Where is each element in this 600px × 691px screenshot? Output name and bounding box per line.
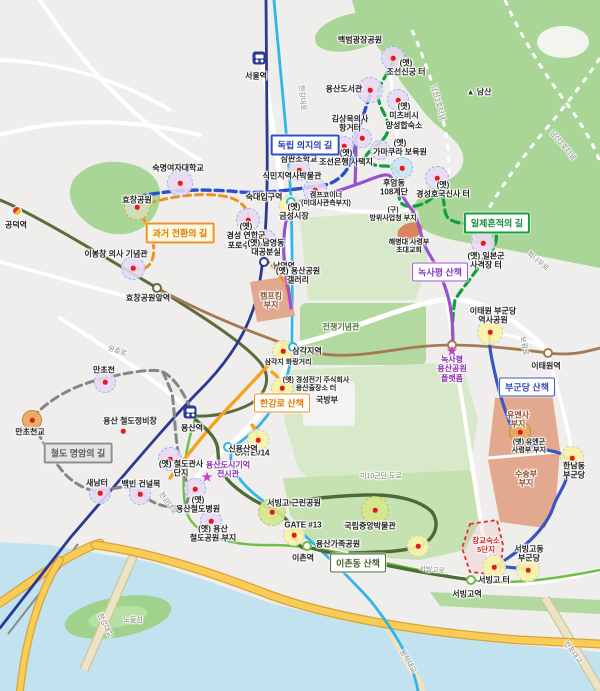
map-label: 동작대교 bbox=[397, 649, 417, 675]
poi-dot bbox=[492, 565, 497, 570]
route-railway-gray bbox=[32, 370, 190, 507]
poi-dot bbox=[178, 181, 183, 186]
station-itaewon bbox=[543, 348, 553, 358]
map-label: 한남동 부군당 bbox=[563, 462, 585, 481]
map-label: 신용산역 bbox=[228, 444, 257, 453]
map-label: (옛) 용산철도병원 bbox=[176, 496, 220, 515]
poi-circle bbox=[381, 46, 405, 70]
map-label: 공덕역 bbox=[5, 220, 27, 229]
poi-dot bbox=[360, 136, 365, 141]
expressways bbox=[0, 543, 600, 691]
map-label: (옛) 유엔군 사령부 부지 bbox=[512, 439, 546, 456]
poi-circle bbox=[119, 427, 127, 435]
map-label: 국방부 bbox=[316, 395, 338, 404]
walk-hangangro-orange bbox=[170, 350, 283, 478]
station-sinyongsan bbox=[223, 442, 233, 452]
poi-circle bbox=[200, 510, 222, 532]
poi-circle bbox=[352, 128, 372, 148]
poi-dot bbox=[30, 418, 35, 423]
map-label: (옛) 용산 철도공원 부지 bbox=[190, 525, 236, 544]
poi-circle bbox=[129, 483, 151, 505]
poi-circle bbox=[288, 159, 310, 181]
poi-circle bbox=[560, 446, 584, 470]
poi-dot bbox=[270, 510, 275, 515]
walk-ichondong-green bbox=[196, 420, 471, 580]
route-label-independence-will: 독립 의지의 길 bbox=[271, 135, 340, 156]
poi-circle bbox=[167, 170, 193, 196]
poi-dot bbox=[368, 88, 373, 93]
map-label: 유엔사 부지 bbox=[507, 411, 529, 430]
poi-dot bbox=[131, 266, 136, 271]
map-label: 장교숙소 5단지 bbox=[472, 537, 500, 555]
jungang-line bbox=[184, 416, 600, 582]
poi-dot bbox=[281, 349, 286, 354]
map-label: 한강대로 bbox=[156, 491, 178, 517]
poi-circle bbox=[121, 256, 145, 280]
map-label: 캠프킴 부지 bbox=[260, 292, 282, 311]
poi-dot bbox=[488, 330, 493, 335]
camp-kim-site bbox=[250, 276, 295, 322]
station-hyochang-park bbox=[152, 283, 162, 293]
poi-dot bbox=[292, 533, 297, 538]
map-label: (옛) 철도관사 단지 bbox=[159, 460, 203, 479]
poi-dot bbox=[391, 56, 396, 61]
rail-lines bbox=[0, 0, 600, 691]
poi-circle bbox=[22, 410, 42, 430]
map-label: 해병대 사령부 초대교회 bbox=[389, 239, 430, 256]
map-label: (옛) 금성시장 bbox=[279, 203, 308, 222]
gyeongui-line bbox=[0, 200, 267, 416]
map-label: 용산역 bbox=[181, 423, 203, 432]
station-namyeong bbox=[259, 257, 269, 267]
poi-circle bbox=[509, 421, 531, 443]
map-label: 서빙고 터 bbox=[478, 575, 510, 584]
poi-dot bbox=[570, 456, 575, 461]
subway-line4 bbox=[231, 0, 418, 691]
poi-circle bbox=[334, 136, 354, 156]
defense-ministry-block bbox=[303, 382, 355, 426]
route-independence-blue bbox=[125, 95, 370, 200]
poi-circle bbox=[158, 447, 182, 471]
route-label-past-transition: 과거 전환의 길 bbox=[146, 223, 215, 244]
banpo-bridge bbox=[545, 598, 600, 690]
poi-dot bbox=[246, 218, 251, 223]
han-river bbox=[0, 542, 600, 691]
site-areas bbox=[250, 219, 560, 575]
map-label: (옛) 경성호국신사 터 bbox=[416, 181, 470, 200]
walk-label-ichondong: 이촌동 산책 bbox=[330, 554, 386, 573]
map-label: 식민지역사박물관 bbox=[263, 171, 322, 180]
poi-circle bbox=[247, 429, 269, 451]
map-label: 만초천 bbox=[93, 365, 115, 374]
poi-dot bbox=[400, 166, 405, 171]
map-label: (옛) 경성전기 주식회사 용산출장소 터 bbox=[283, 377, 350, 394]
theme-routes bbox=[32, 60, 496, 507]
park-areas bbox=[70, 0, 600, 614]
poi-circle bbox=[482, 555, 506, 579]
poi-circle bbox=[184, 478, 206, 500]
map-label: 전쟁기념관 bbox=[323, 322, 360, 331]
poi-dot bbox=[121, 429, 126, 434]
hangang-rail-bridge bbox=[8, 544, 78, 634]
main-post-area bbox=[284, 362, 478, 520]
map-label: 회나무로 bbox=[524, 251, 549, 274]
map-label: GATE #13 bbox=[284, 520, 321, 529]
map-overlay: 서울역공덕역백범광장공원(옛) 조선신궁 터용산도서관(옛) 미츠비시 양성합숙… bbox=[0, 0, 600, 691]
poi-circle bbox=[357, 77, 383, 103]
map-label: (옛) 남영동 대공분실 bbox=[248, 239, 285, 258]
poi-circle bbox=[425, 166, 449, 190]
poi-dot bbox=[263, 238, 268, 243]
walk-routes bbox=[170, 124, 569, 580]
route-past-orange bbox=[134, 195, 289, 300]
station-sookdae-ipgu bbox=[286, 197, 296, 207]
poi-circle bbox=[254, 229, 276, 251]
poi-dot bbox=[518, 430, 523, 435]
walk-noksapyeong-purple bbox=[284, 124, 453, 348]
map-label: 남산3호터널 bbox=[428, 85, 445, 122]
poi-circle bbox=[89, 482, 111, 504]
map-label: 서빙고로 bbox=[419, 566, 445, 577]
route-label-railway: 철도 명암의 길 bbox=[44, 443, 113, 464]
poi-dot bbox=[209, 519, 214, 524]
namsan-trails bbox=[412, 0, 600, 245]
subway-line6 bbox=[157, 288, 600, 355]
map-geometry bbox=[0, 0, 600, 691]
poi-dot bbox=[288, 204, 293, 209]
poi-dot bbox=[135, 205, 140, 210]
poi-circle bbox=[370, 140, 390, 160]
marine-hq-church-site bbox=[395, 219, 425, 243]
map-label: 용산도서관 bbox=[326, 84, 363, 93]
map-label: (옛) 조선신궁 터 bbox=[386, 59, 425, 78]
map-label: 만초천교 bbox=[15, 427, 44, 436]
map-label: 수송부 부지 bbox=[515, 470, 537, 489]
poi-dot bbox=[103, 380, 108, 385]
map-label: 삼각지 화랑거리 bbox=[264, 359, 311, 367]
nodeul-island bbox=[61, 588, 174, 646]
namsan-park bbox=[352, 0, 600, 268]
poi-circle bbox=[303, 178, 327, 202]
poi-dot bbox=[378, 148, 383, 153]
map-label: 캠프코이너 (미대사관측부지) bbox=[301, 192, 351, 209]
camp-coiner-area bbox=[300, 210, 428, 300]
map-label: 남산1호터널 bbox=[547, 130, 577, 163]
nodeul-island-inner bbox=[87, 602, 150, 632]
map-label: 용산도시기억 전시관 bbox=[206, 461, 250, 480]
poi-circle bbox=[471, 231, 495, 255]
officer-housing-site bbox=[462, 520, 503, 575]
map-label: 백빈 건널목 bbox=[121, 479, 160, 488]
poi-circle bbox=[236, 208, 260, 232]
map-label: ★ bbox=[447, 344, 458, 358]
dongjak-bridge bbox=[388, 628, 424, 691]
map-label: 한강대로 bbox=[296, 85, 306, 111]
walk-label-hangangro: 한강로 산책 bbox=[254, 394, 310, 413]
station-samgakji bbox=[288, 342, 298, 352]
poi-circle bbox=[391, 157, 413, 179]
poi-dot bbox=[280, 386, 285, 391]
namsan-clearing bbox=[537, 26, 589, 58]
map-label: 이촌역 bbox=[292, 553, 314, 562]
poi-dot bbox=[396, 98, 401, 103]
poi-dot bbox=[481, 241, 486, 246]
poi-dot bbox=[435, 176, 440, 181]
river-water bbox=[0, 542, 600, 691]
baekbeom-plaza-park bbox=[311, 5, 393, 58]
station-yongsan bbox=[184, 406, 197, 419]
map-label: 숙대입구역 bbox=[246, 192, 283, 201]
war-memorial-area bbox=[300, 303, 426, 365]
map-label: 서빙고동 부군당 bbox=[514, 545, 543, 564]
poi-dot bbox=[297, 168, 302, 173]
poi-circle bbox=[279, 195, 301, 217]
poi-circle bbox=[258, 498, 286, 526]
map-label: 서울역 bbox=[245, 71, 267, 80]
map-label: (옛) 미츠비시 양성합숙소 bbox=[386, 102, 423, 130]
map-label: (옛) 삼판소학교 bbox=[281, 146, 318, 165]
map-label: (구) 방위사업청 부지 bbox=[369, 207, 416, 224]
poi-dot bbox=[98, 491, 103, 496]
map-label: ▲ 남산 bbox=[467, 87, 492, 96]
map-label: 이봉창 의사 기념관 bbox=[84, 249, 147, 258]
poi-circle bbox=[407, 535, 429, 557]
map-label: 이태원역 bbox=[531, 361, 560, 370]
poi-circle bbox=[387, 89, 409, 111]
map-label: 삼각지역 bbox=[292, 346, 321, 355]
map-label: 녹사평 용산공원 플랫폼 bbox=[437, 355, 466, 383]
map-label: 새남터 bbox=[86, 478, 108, 487]
poi-circle bbox=[271, 377, 293, 399]
poi-dot bbox=[138, 492, 143, 497]
map-label: (옛) 경성 연합군 포로수용소 bbox=[226, 222, 265, 250]
station-noksapyeong bbox=[447, 340, 457, 350]
gyeongbu-line bbox=[0, 0, 267, 628]
map-label: 서빙고역 bbox=[452, 589, 481, 598]
map-label: 이태원 부군당 역사공원 bbox=[470, 307, 516, 326]
map-label: 반포대교 bbox=[561, 640, 583, 666]
poi-circle bbox=[283, 524, 305, 546]
map-label: 원효로 bbox=[107, 345, 128, 359]
poi-dot bbox=[526, 568, 531, 573]
poi-circle bbox=[124, 194, 150, 220]
museum-family-park-area bbox=[283, 470, 480, 560]
station-gongdeok bbox=[12, 206, 22, 216]
map-label: (옛) 용산공원 갤러리 bbox=[276, 267, 320, 286]
map-label: ★ bbox=[202, 470, 213, 484]
poi-dot bbox=[193, 487, 198, 492]
map-canvas[interactable]: 서울역공덕역백범광장공원(옛) 조선신궁 터용산도서관(옛) 미츠비시 양성합숙… bbox=[0, 0, 600, 691]
station-ichon bbox=[302, 541, 312, 551]
map-label: 효창공원앞역 bbox=[126, 293, 170, 302]
map-label: 용산 철도정비창 bbox=[103, 416, 157, 425]
poi-dot bbox=[373, 508, 378, 513]
map-label: 백범광장공원 bbox=[338, 35, 382, 44]
route-colonial-green bbox=[366, 60, 497, 350]
station-seoul bbox=[253, 52, 266, 65]
map-label: 노들섬 bbox=[123, 617, 142, 625]
map-label: 남영역 bbox=[273, 261, 295, 270]
poi-circle bbox=[477, 319, 503, 345]
poi-circle bbox=[361, 496, 389, 524]
map-label: 서빙고 근린공원 bbox=[267, 498, 321, 507]
poi-circle bbox=[272, 340, 294, 362]
unc-transport-site bbox=[488, 393, 560, 528]
walk-label-noksapyeong: 녹사평 산책 bbox=[412, 263, 468, 282]
map-label: 김상옥의사 항거터 bbox=[332, 115, 369, 134]
map-label: 국립중앙박물관 bbox=[344, 521, 396, 530]
station-seobinggo bbox=[466, 575, 476, 585]
poi-circle bbox=[94, 371, 116, 393]
map-label: 보광로 bbox=[517, 336, 528, 356]
walk-label-bugundang: 부군당 산책 bbox=[499, 378, 555, 397]
map-label: GATE#14 bbox=[235, 448, 270, 457]
map-label: 용산가족공원 bbox=[316, 539, 360, 548]
map-label: 한강대교 bbox=[95, 613, 113, 640]
map-label: 후암동 108계단 bbox=[380, 179, 408, 198]
poi-dot bbox=[342, 144, 347, 149]
map-label: (옛) 가마쿠라 보육원 bbox=[373, 139, 427, 158]
map-label: 효창공원 bbox=[122, 195, 151, 204]
route-label-colonial-traces: 일제흔적의 길 bbox=[464, 213, 530, 234]
hangang-bridge bbox=[84, 552, 135, 670]
poi-dot bbox=[168, 457, 173, 462]
riverside-park-strip bbox=[430, 592, 600, 614]
hyochang-park bbox=[70, 162, 160, 234]
map-label: (옛) 일본군 사격장 터 bbox=[468, 252, 505, 271]
roads bbox=[0, 0, 600, 583]
poi-circle bbox=[516, 558, 540, 582]
map-label: (옛) 조선은행 사택지 bbox=[319, 149, 373, 168]
poi-dot bbox=[256, 438, 261, 443]
walk-bugundang-blue bbox=[489, 332, 568, 569]
poi-dot bbox=[313, 188, 318, 193]
poi-dot bbox=[416, 544, 421, 549]
map-label: 숙명여자대학교 bbox=[152, 163, 204, 172]
map-label: 미10군단 도로 bbox=[360, 473, 402, 481]
